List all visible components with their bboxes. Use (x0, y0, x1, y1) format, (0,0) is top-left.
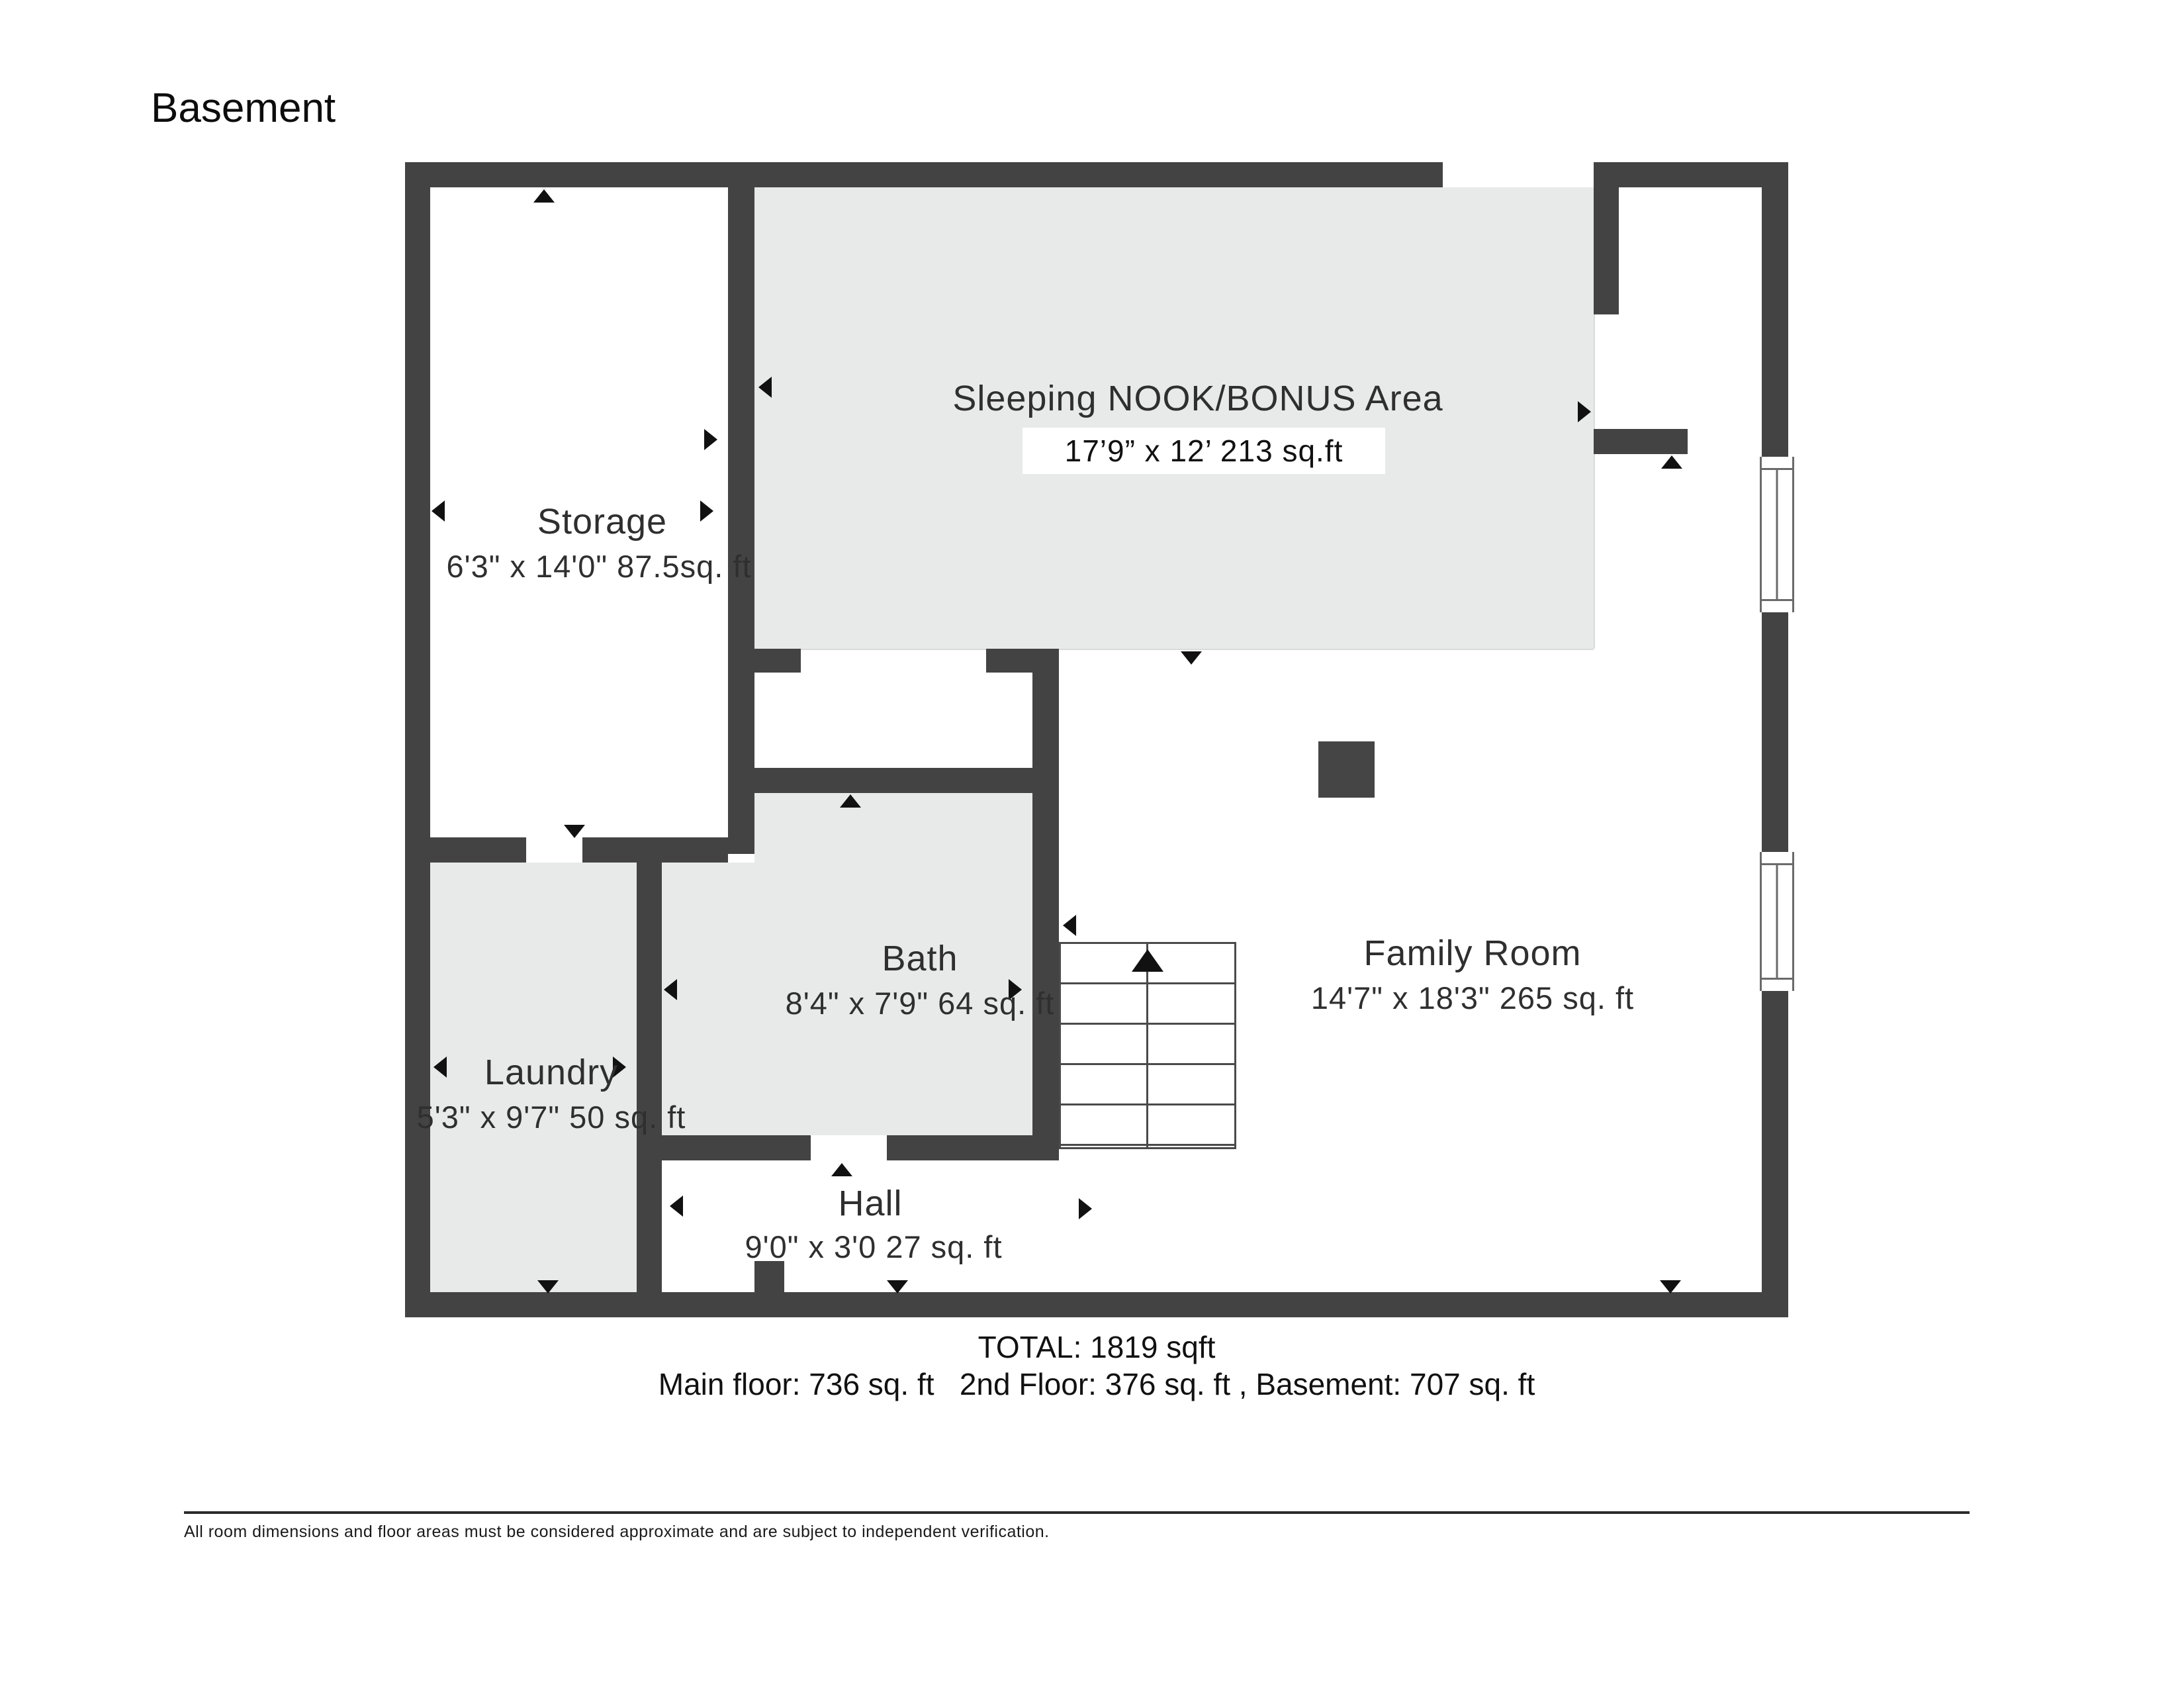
wall-nook-closet-stub-left (754, 649, 801, 673)
floor-plan-page: Basement (0, 0, 2184, 1688)
door-arrow-down-icon (887, 1280, 908, 1293)
door-arrow-left-icon (1063, 915, 1076, 936)
wall-stairwell-top (1594, 162, 1787, 187)
page-title: Basement (151, 85, 336, 132)
wall-nook-closet-stub-right (986, 649, 1059, 673)
wall-outer-right-upper (1762, 162, 1788, 457)
disclaimer-text: All room dimensions and floor areas must… (184, 1523, 1772, 1542)
wall-outer-right-lower (1762, 991, 1788, 1317)
door-arrow-left-icon (670, 1196, 683, 1217)
room-dims-laundry: 5'3" x 9'7" 50 sq. ft (320, 1099, 783, 1136)
room-label-storage: Storage (371, 502, 834, 541)
wall-bath-top (728, 768, 1059, 793)
room-label-sleeping-nook: Sleeping NOOK/BONUS Area (801, 379, 1595, 418)
wall-hall-door-stub (754, 1261, 784, 1292)
room-dims-sleeping-nook: 17’9” x 12’ 213 sq.ft (1023, 428, 1385, 474)
window-mullion (1776, 863, 1778, 980)
wall-nook-closet-right (1032, 671, 1059, 768)
window-mullion (1776, 468, 1778, 601)
stairs-up-arrow-icon (1132, 949, 1163, 972)
window-family-room-lower (1760, 852, 1794, 991)
room-dims-storage: 6'3" x 14'0" 87.5sq. ft (331, 548, 867, 585)
footer-rule (184, 1511, 1970, 1514)
room-label-bath: Bath (721, 939, 1118, 978)
wall-outer-left (405, 162, 430, 1317)
wall-hall-top-left (637, 1135, 811, 1160)
wall-stairwell-bottom (1594, 429, 1688, 454)
door-arrow-up-icon (840, 794, 861, 808)
window-family-room-upper (1760, 457, 1794, 612)
door-arrow-down-icon (1181, 651, 1202, 665)
door-arrow-up-icon (533, 189, 555, 203)
wall-stairwell-left (1594, 187, 1619, 314)
support-post (1318, 741, 1375, 798)
room-dims-family-room: 14'7" x 18'3" 265 sq. ft (1208, 980, 1737, 1017)
wall-outer-right-middle (1762, 612, 1788, 852)
wall-hall-top-right (887, 1135, 1059, 1160)
door-arrow-down-icon (564, 825, 585, 838)
room-label-family-room: Family Room (1274, 933, 1671, 973)
wall-laundry-top-left (430, 837, 526, 863)
room-dims-bath: 8'4" x 7'9" 64 sq. ft (675, 985, 1165, 1022)
room-dims-hall: 9'0" x 3'0 27 sq. ft (675, 1229, 1072, 1266)
door-arrow-right-icon (1079, 1198, 1092, 1219)
door-arrow-left-icon (758, 377, 772, 398)
room-label-laundry: Laundry (386, 1053, 717, 1092)
door-arrow-up-icon (1661, 455, 1682, 469)
total-area-line: TOTAL: 1819 sqft (405, 1329, 1788, 1365)
wall-outer-top (405, 162, 1443, 187)
floor-breakdown-line: Main floor: 736 sq. ft 2nd Floor: 376 sq… (405, 1366, 1788, 1402)
wall-outer-bottom (405, 1292, 1788, 1317)
door-arrow-down-icon (1660, 1280, 1681, 1293)
door-arrow-up-icon (831, 1163, 852, 1176)
door-arrow-right-icon (704, 429, 717, 450)
door-arrow-down-icon (537, 1280, 559, 1293)
room-label-hall: Hall (705, 1184, 1036, 1223)
